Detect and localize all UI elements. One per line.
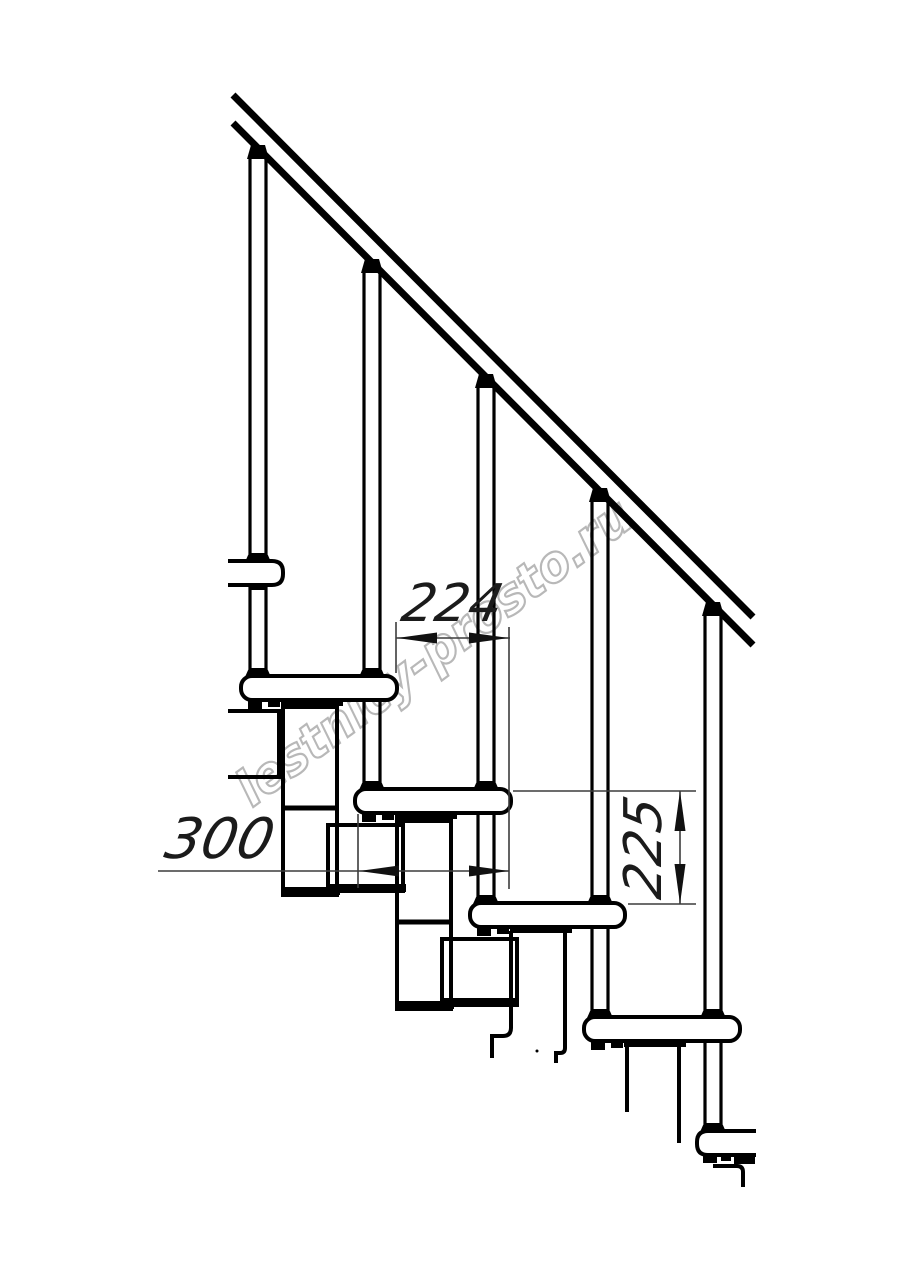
drawing-canvas: lestnicy-prosto.ru bbox=[0, 0, 914, 1280]
arrow-right bbox=[469, 866, 509, 877]
dimension-label-depth: 300 bbox=[160, 807, 281, 872]
watermark-text: lestnicy-prosto.ru bbox=[225, 487, 644, 818]
module-sleeve-2 bbox=[328, 825, 403, 891]
baluster-5 bbox=[700, 602, 726, 1132]
dimension-label-rise: 225 bbox=[614, 791, 674, 903]
tread-2 bbox=[241, 676, 397, 700]
tread-1 bbox=[228, 561, 283, 585]
module-under-tread-6-cut bbox=[713, 1166, 743, 1187]
treads bbox=[228, 561, 756, 1155]
baluster-1 bbox=[245, 145, 271, 677]
module-sleeve-3 bbox=[442, 939, 517, 1005]
tread-4 bbox=[470, 903, 625, 927]
staircase-side-elevation: lestnicy-prosto.ru bbox=[0, 0, 914, 1280]
dimension-label-going: 224 bbox=[397, 574, 509, 634]
tread-3 bbox=[355, 789, 511, 813]
arrow-down bbox=[675, 864, 686, 904]
arrow-left bbox=[359, 866, 399, 877]
watermark: lestnicy-prosto.ru bbox=[225, 487, 644, 818]
baluster-4 bbox=[587, 488, 613, 1018]
module-column-4-cut bbox=[492, 931, 511, 1058]
dimension-rise: 225 bbox=[513, 791, 696, 904]
tread-5 bbox=[584, 1017, 740, 1041]
arrow-up bbox=[675, 791, 686, 831]
tread-6 bbox=[697, 1131, 756, 1155]
